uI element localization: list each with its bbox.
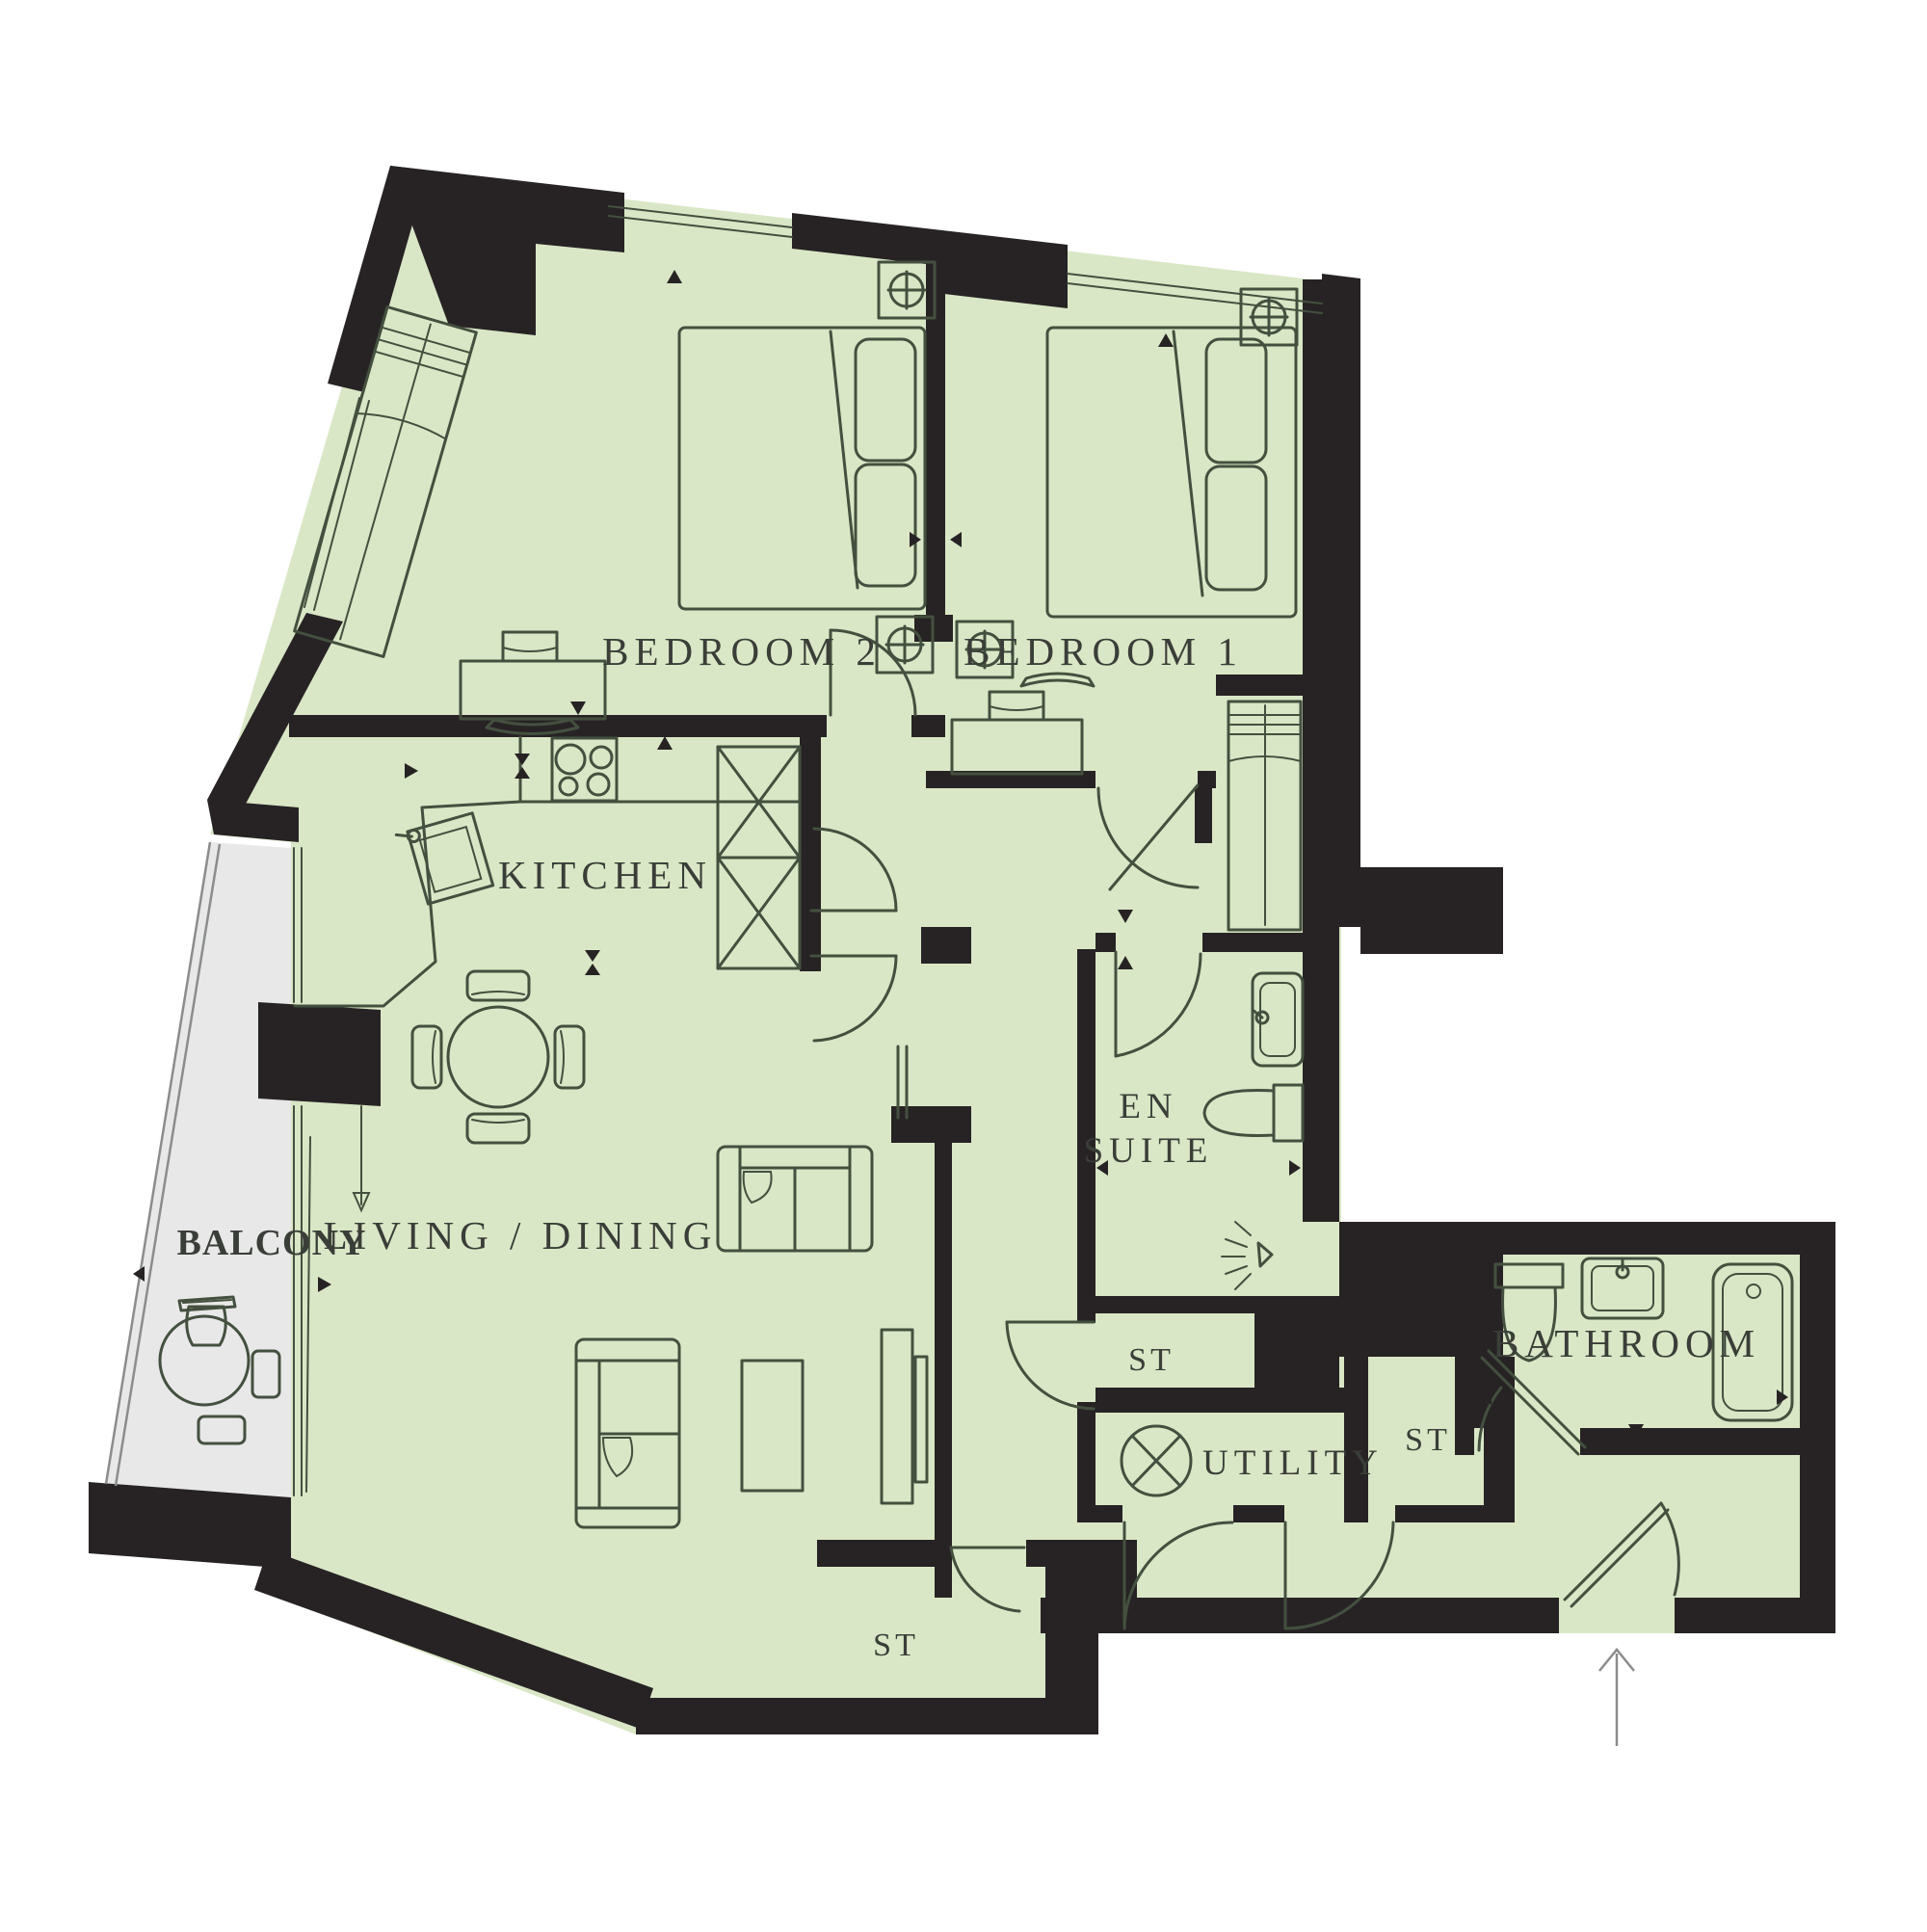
label-kitchen: KITCHEN (498, 853, 712, 897)
balcony-floor (106, 842, 291, 1499)
label-store1: ST (1128, 1342, 1175, 1378)
label-living: LIVING / DINING (324, 1213, 718, 1257)
label-ensuite-line2: SUITE (1084, 1131, 1214, 1171)
label-store2: ST (1405, 1422, 1451, 1458)
apartment-floor (210, 173, 1831, 1734)
label-ensuite-line1: EN (1119, 1087, 1177, 1126)
label-bathroom: BATHROOM (1492, 1321, 1760, 1365)
label-store3: ST (873, 1628, 919, 1663)
label-utility: UTILITY (1202, 1443, 1384, 1483)
label-bedroom1: BEDROOM 1 (963, 629, 1243, 674)
label-balcony: BALCONY (176, 1223, 366, 1263)
floorplan-page: BEDROOM 2 BEDROOM 1 KITCHEN LIVING / DIN… (0, 0, 1927, 1927)
label-bedroom2: BEDROOM 2 (602, 629, 882, 674)
floorplan-svg: BEDROOM 2 BEDROOM 1 KITCHEN LIVING / DIN… (0, 0, 1927, 1927)
entry-arrow-icon (1599, 1650, 1634, 1746)
